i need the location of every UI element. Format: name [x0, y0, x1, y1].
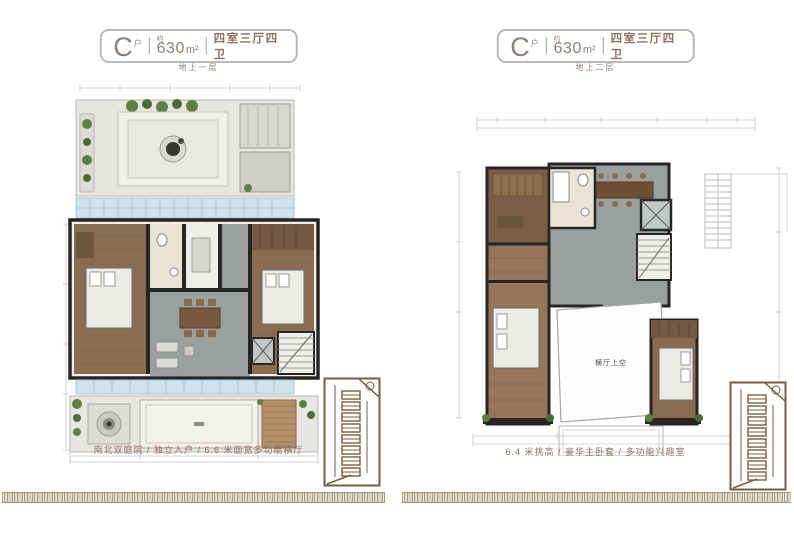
- unit-area: 约 630 m²: [157, 35, 199, 56]
- unit-type-letter: C 户: [510, 31, 539, 60]
- kitchen: [186, 224, 218, 288]
- unit-type-badge: C 户 约 630 m² 四室三厅四卫: [496, 29, 695, 63]
- interior-level1: [70, 220, 318, 378]
- site-keymap-sketch: [323, 377, 381, 487]
- floor-label-level2: 地上二层: [397, 62, 794, 73]
- stairs: [637, 234, 671, 280]
- type-letter-suffix: 户: [531, 31, 539, 60]
- rooms-label: 四室三厅四卫: [214, 30, 284, 62]
- dressing-room: [487, 168, 549, 244]
- bedroom-east-l2: [651, 320, 697, 424]
- glass-canopy-north: [76, 198, 294, 218]
- unit-type-badge: C 户 约 630 m² 四室三厅四卫: [99, 29, 298, 63]
- type-letter-suffix: 户: [134, 31, 142, 60]
- unit-type-letter: C 户: [113, 31, 142, 60]
- bathroom-level1: [150, 224, 182, 288]
- meander-border: [402, 492, 791, 503]
- dining-table: [180, 308, 220, 328]
- rooms-label: 四室三厅四卫: [611, 30, 681, 62]
- bedroom-west: [74, 224, 146, 374]
- divider-bar: [603, 37, 604, 54]
- area-unit: m²: [186, 44, 199, 56]
- divider-bar: [206, 37, 207, 54]
- floorplan-level1: [62, 84, 328, 464]
- area-value: 630: [157, 42, 185, 56]
- elevator: [641, 200, 671, 230]
- long-table: [593, 182, 653, 198]
- approx-label: 约: [157, 34, 164, 44]
- area-unit: m²: [583, 44, 596, 56]
- site-keymap-sketch: [729, 381, 787, 491]
- glass-canopy-south: [76, 380, 294, 394]
- type-letter: C: [510, 34, 530, 60]
- bedroom-west-l2: [487, 244, 549, 424]
- area-value: 630: [554, 42, 582, 56]
- unit-area: 约 630 m²: [554, 35, 596, 56]
- approx-label: 约: [554, 34, 561, 44]
- sofa: [156, 342, 178, 352]
- panel-level1: C 户 约 630 m² 四室三厅四卫 地上一层: [0, 0, 397, 536]
- north-courtyard: [76, 99, 294, 196]
- type-letter: C: [113, 34, 133, 60]
- floorplan-sheet: C 户 约 630 m² 四室三厅四卫 地上一层: [0, 0, 794, 536]
- bathroom-level2: [549, 168, 595, 228]
- exterior-stair: [705, 174, 787, 248]
- stairs: [278, 332, 314, 374]
- panel-level2: C 户 约 630 m² 四室三厅四卫 地上二层: [397, 0, 794, 536]
- divider-bar: [546, 37, 547, 54]
- elevator: [252, 338, 274, 364]
- floor-label-level1: 地上一层: [0, 62, 397, 73]
- meander-border: [2, 492, 385, 503]
- divider-bar: [149, 37, 150, 54]
- void-label: 横厅上空: [595, 358, 627, 367]
